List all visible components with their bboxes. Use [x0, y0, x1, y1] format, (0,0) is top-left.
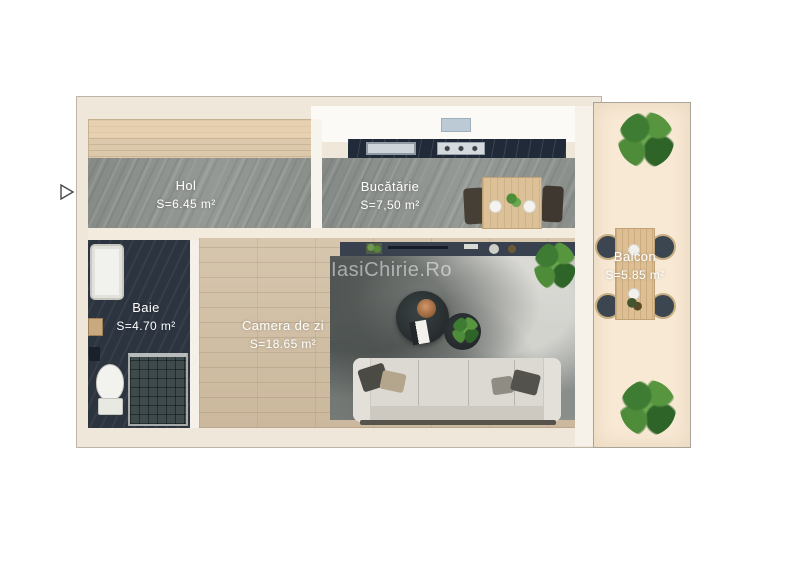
room-area: S=18.65 m²	[218, 337, 348, 351]
tv-icon	[388, 246, 448, 249]
shower-icon	[128, 353, 188, 426]
toilet-icon	[96, 364, 124, 401]
room-label-balcon: Balcon S=5.85 m²	[592, 249, 678, 282]
decor-item	[508, 245, 516, 253]
sofa-seam	[418, 360, 419, 406]
room-area: S=6.45 m²	[131, 197, 241, 211]
sofa-base	[360, 420, 556, 425]
plate-icon	[489, 200, 502, 213]
decor-item	[464, 244, 478, 249]
room-label-camera-de-zi: Camera de zi S=18.65 m²	[218, 318, 348, 351]
sofa-seam	[468, 360, 469, 406]
sink-icon	[366, 142, 416, 155]
cooktop-icon	[437, 142, 485, 155]
plant-icon	[452, 317, 479, 344]
plant-icon	[366, 243, 382, 254]
room-area: S=4.70 m²	[96, 319, 196, 333]
kitchen-window	[441, 118, 471, 132]
room-area: S=5.85 m²	[592, 268, 678, 282]
room-label-bucatarie: Bucătărie S=7,50 m²	[330, 179, 450, 212]
room-label-baie: Baie S=4.70 m²	[96, 300, 196, 333]
sofa-armrest	[543, 358, 561, 422]
toilet-tank	[98, 398, 123, 415]
plant-icon	[626, 296, 643, 313]
room-name: Bucătărie	[330, 179, 450, 194]
hall-wardrobe	[88, 119, 313, 160]
plant-icon	[534, 242, 576, 290]
decor-item	[489, 244, 499, 254]
room-label-hol: Hol S=6.45 m²	[131, 178, 241, 211]
flower-icon	[504, 191, 523, 210]
plant-icon	[620, 380, 676, 436]
plant-icon	[618, 112, 674, 168]
floor-plan: Hol S=6.45 m² Bucătărie S=7,50 m² Baie S…	[0, 0, 797, 563]
bathroom-living-wall	[190, 240, 199, 428]
living-balcony-wall	[575, 106, 593, 446]
room-name: Hol	[131, 178, 241, 193]
plate-icon	[523, 200, 536, 213]
room-area: S=7,50 m²	[330, 198, 450, 212]
watermark: IasiChirie.Ro	[331, 259, 491, 282]
bathtub-icon	[90, 244, 124, 300]
triangle-marker-icon	[57, 182, 77, 202]
bathroom-cabinet	[89, 347, 100, 361]
room-name: Balcon	[592, 249, 678, 264]
kitchen-chair	[541, 185, 564, 222]
bowl-icon	[417, 299, 436, 318]
room-name: Baie	[96, 300, 196, 315]
hall-kitchen-wall	[311, 119, 322, 228]
room-name: Camera de zi	[218, 318, 348, 333]
